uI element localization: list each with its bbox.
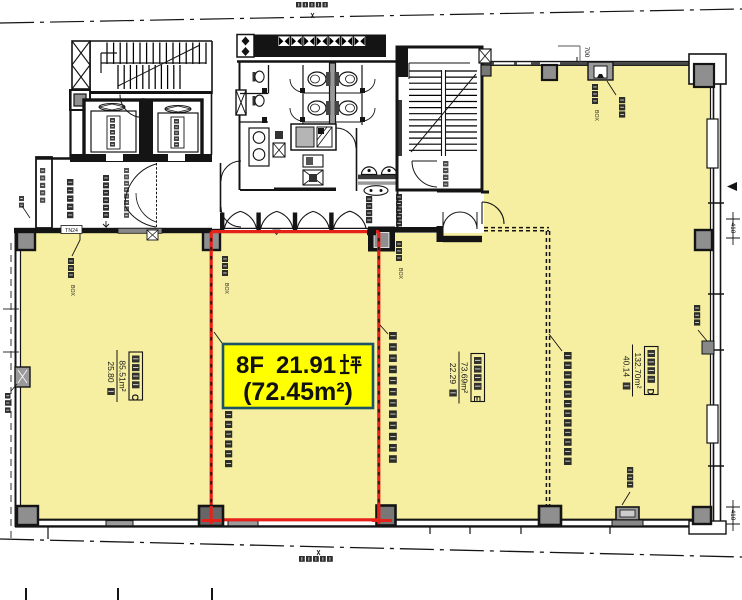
svg-text:40.14: 40.14 [622, 356, 632, 378]
svg-text:8F: 8F [236, 352, 264, 379]
svg-text:132.70m²: 132.70m² [633, 353, 643, 389]
svg-text:700: 700 [583, 47, 590, 58]
svg-text:BOX: BOX [397, 268, 403, 279]
svg-text:73.69m²: 73.69m² [460, 362, 470, 393]
svg-text:21.91: 21.91 [276, 352, 336, 379]
svg-text:22.29: 22.29 [448, 363, 458, 385]
svg-text:E: E [472, 396, 482, 402]
svg-text:C: C [130, 394, 140, 401]
svg-text:410: 410 [729, 223, 736, 234]
svg-text:(72.45m²): (72.45m²) [243, 378, 353, 406]
svg-text:BOX: BOX [69, 285, 75, 296]
svg-text:BOX: BOX [223, 283, 229, 294]
svg-text:D: D [646, 389, 656, 396]
svg-text:25.80: 25.80 [106, 361, 116, 383]
svg-text:TN24: TN24 [65, 228, 78, 234]
svg-text:85.51m²: 85.51m² [118, 360, 128, 391]
svg-text:BOX: BOX [593, 110, 599, 121]
svg-text:410: 410 [729, 510, 736, 521]
